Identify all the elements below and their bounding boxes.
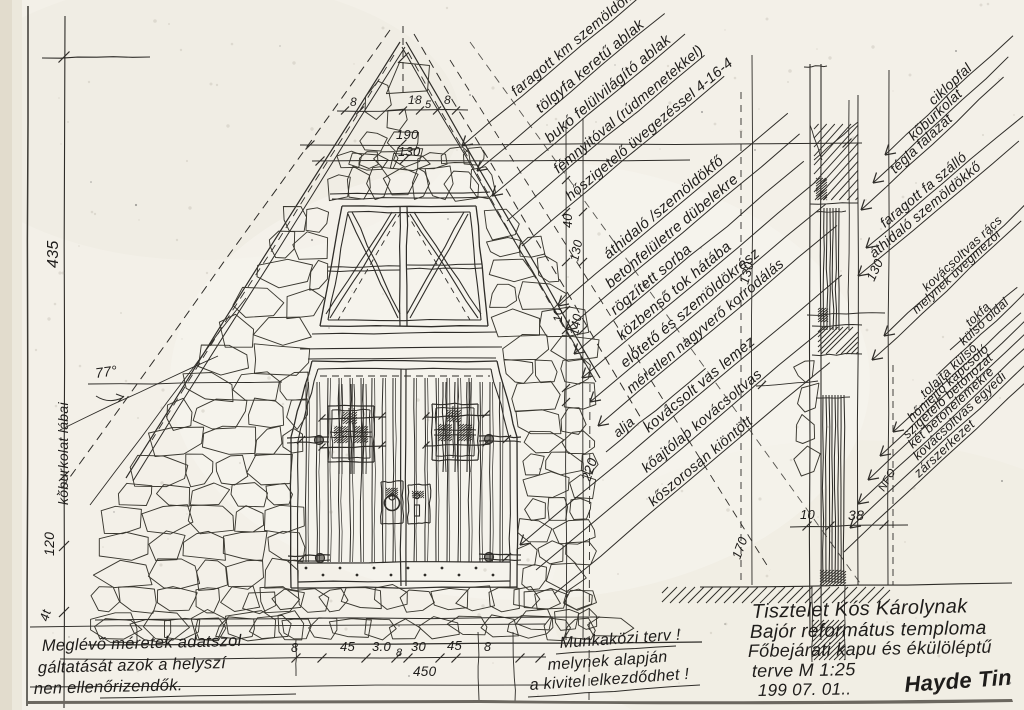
svg-text:45: 45 [447, 638, 463, 653]
svg-text:199 07. 01..: 199 07. 01.. [758, 679, 852, 700]
svg-text:3.0: 3.0 [372, 639, 391, 654]
svg-text:18: 18 [408, 93, 422, 107]
svg-text:8: 8 [350, 95, 357, 109]
svg-text:8: 8 [291, 641, 298, 655]
svg-text:190: 190 [396, 127, 419, 142]
svg-text:8: 8 [444, 93, 451, 107]
svg-text:30: 30 [411, 639, 427, 654]
svg-text:terve M 1:25: terve M 1:25 [752, 659, 857, 681]
svg-text:8: 8 [396, 647, 403, 659]
svg-text:45: 45 [340, 639, 356, 654]
svg-text:40: 40 [561, 213, 575, 228]
svg-text:450: 450 [413, 664, 437, 679]
svg-text:8: 8 [484, 640, 491, 654]
svg-text:77°: 77° [94, 362, 118, 381]
svg-text:Főbejárati kapu és ékülöléptű: Főbejárati kapu és ékülöléptű [748, 637, 993, 661]
svg-text:kőburkolat lábai: kőburkolat lábai [55, 402, 71, 505]
svg-text:10: 10 [800, 507, 816, 522]
svg-text:120: 120 [41, 532, 57, 556]
svg-text:130: 130 [398, 144, 421, 159]
svg-text:5: 5 [425, 99, 432, 111]
svg-text:38: 38 [848, 507, 864, 523]
svg-text:10: 10 [551, 308, 565, 322]
svg-text:435: 435 [45, 240, 62, 268]
